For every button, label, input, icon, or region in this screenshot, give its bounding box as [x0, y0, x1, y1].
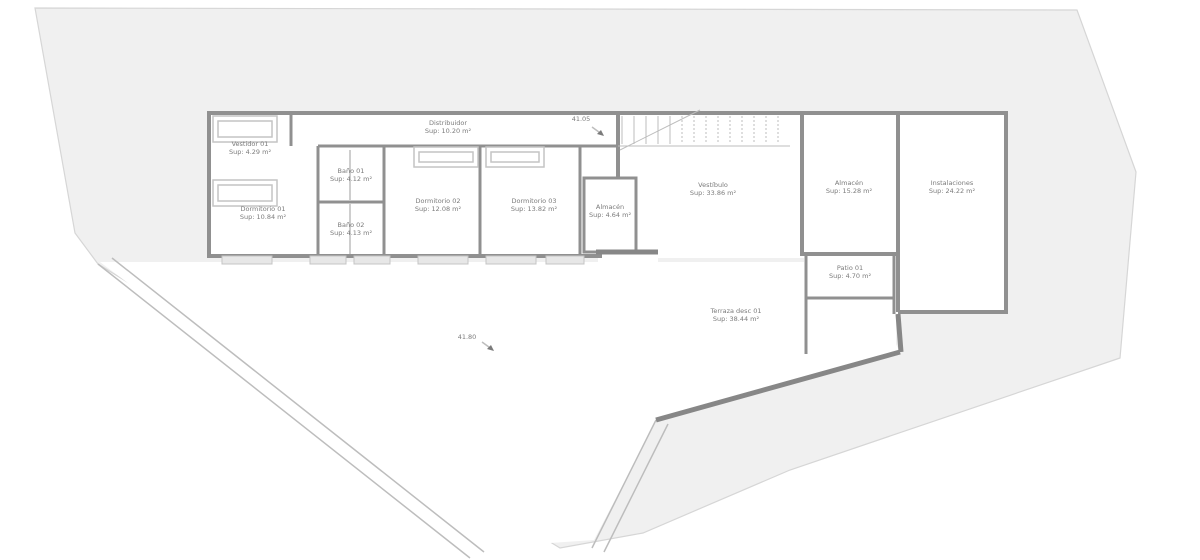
room-label-terraza-01: Terraza desc 01 Sup: 38.44 m² [711, 308, 762, 323]
room-area: Sup: 10.84 m² [240, 214, 286, 222]
room-label-dormitorio-01: Dormitorio 01 Sup: 10.84 m² [240, 206, 286, 221]
level-marker-garden: 41.80 [458, 334, 477, 341]
room-area: Sup: 4.64 m² [589, 212, 631, 220]
room-label-dormitorio-02: Dormitorio 02 Sup: 12.08 m² [415, 198, 461, 213]
room-label-patio-01: Patio 01 Sup: 4.70 m² [829, 265, 871, 280]
room-area: Sup: 15.28 m² [826, 188, 872, 196]
room-label-distribuidor: Distribuidor Sup: 10.20 m² [425, 120, 471, 135]
level-marker-upper: 41.05 [572, 116, 591, 123]
room-label-almacen-02: Almacén Sup: 15.28 m² [826, 180, 872, 195]
room-label-dormitorio-03: Dormitorio 03 Sup: 13.82 m² [511, 198, 557, 213]
room-area: Sup: 4.12 m² [330, 176, 372, 184]
room-label-instalaciones: Instalaciones Sup: 24.22 m² [929, 180, 975, 195]
room-area: Sup: 4.29 m² [229, 149, 271, 157]
floor-plan-canvas: Vestidor 01 Sup: 4.29 m² Dormitorio 01 S… [0, 0, 1200, 560]
floor-plan-drawing [0, 0, 1200, 560]
room-area: Sup: 10.20 m² [425, 128, 471, 136]
room-label-almacen-01: Almacén Sup: 4.64 m² [589, 204, 631, 219]
room-area: Sup: 13.82 m² [511, 206, 557, 214]
room-area: Sup: 12.08 m² [415, 206, 461, 214]
room-area: Sup: 4.13 m² [330, 230, 372, 238]
room-area: Sup: 24.22 m² [929, 188, 975, 196]
room-area: Sup: 33.86 m² [690, 190, 736, 198]
room-area: Sup: 38.44 m² [711, 316, 762, 324]
room-label-vestidor-01: Vestidor 01 Sup: 4.29 m² [229, 141, 271, 156]
room-label-bano-02: Baño 02 Sup: 4.13 m² [330, 222, 372, 237]
room-label-bano-01: Baño 01 Sup: 4.12 m² [330, 168, 372, 183]
room-area: Sup: 4.70 m² [829, 273, 871, 281]
room-label-vestibulo: Vestíbulo Sup: 33.86 m² [690, 182, 736, 197]
